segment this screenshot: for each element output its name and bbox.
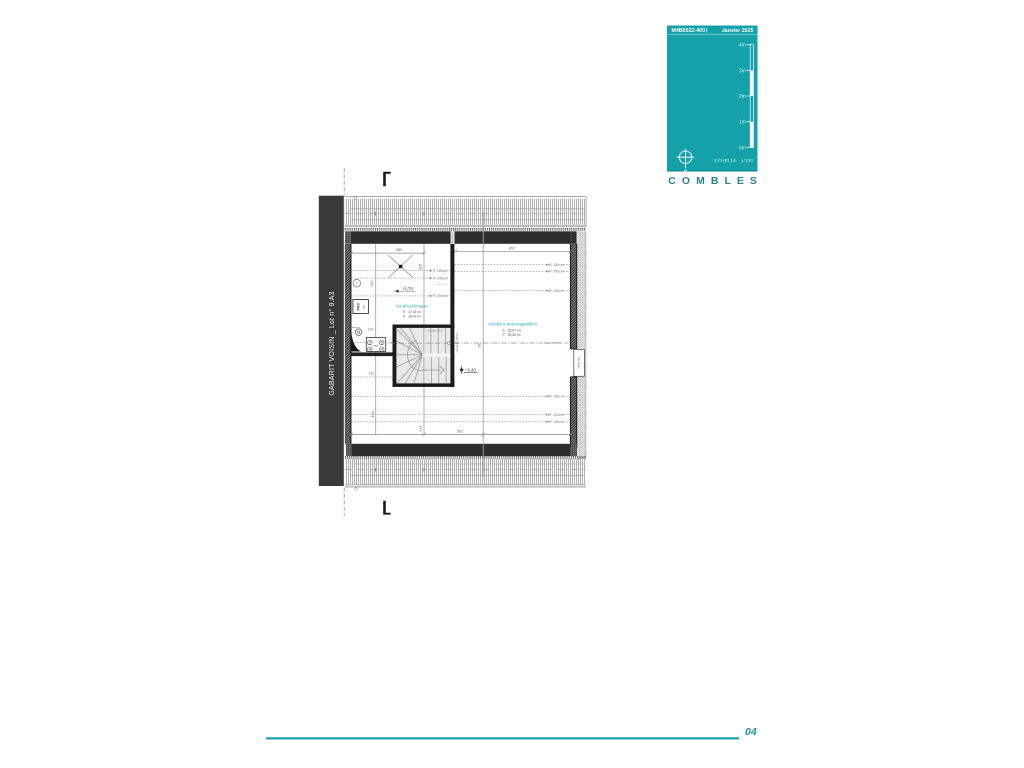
svg-text:ECHELLE 1/100: ECHELLE 1/100	[714, 158, 753, 164]
svg-text:haut fenêtre: haut fenêtre	[544, 341, 562, 345]
svg-text:HF 200cm: HF 200cm	[548, 270, 564, 274]
svg-text:+3,40: +3,40	[465, 367, 476, 372]
svg-text:Janvier 2025: Janvier 2025	[722, 28, 754, 34]
svg-text:velux toit: velux toit	[577, 357, 581, 369]
svg-text:HF 180cm: HF 180cm	[548, 263, 564, 267]
svg-text:512: 512	[370, 280, 374, 286]
svg-text:457: 457	[509, 246, 515, 250]
svg-text:3m: 3m	[739, 68, 746, 74]
svg-text:P 18,42 m²: P 18,42 m²	[403, 315, 422, 319]
svg-text:PAC: PAC	[356, 302, 360, 310]
svg-text:2m: 2m	[739, 94, 746, 100]
svg-text:163: 163	[368, 327, 374, 331]
svg-text:ext.: ext.	[362, 304, 365, 308]
svg-text:COMBLES: COMBLES	[668, 176, 763, 187]
svg-text:4m: 4m	[739, 43, 746, 49]
svg-text:851: 851	[457, 430, 463, 434]
svg-text:monte en 100cm: monte en 100cm	[455, 332, 459, 353]
svg-text:HF 250cm: HF 250cm	[548, 289, 564, 293]
svg-text:combles aménageables: combles aménageables	[488, 322, 538, 327]
svg-text:1m: 1m	[739, 120, 746, 126]
svg-text:local technique: local technique	[396, 304, 428, 309]
svg-text:GABARIT VOISIN _ Lot n° 9.A3: GABARIT VOISIN _ Lot n° 9.A3	[328, 291, 336, 395]
svg-text:HF 180cm: HF 180cm	[431, 269, 447, 273]
svg-text:HF 180cm: HF 180cm	[548, 420, 564, 424]
svg-text:04: 04	[745, 726, 757, 738]
svg-text:163: 163	[368, 372, 374, 376]
svg-text:360: 360	[478, 343, 482, 349]
svg-text:T: T	[356, 282, 358, 286]
svg-text:+1,76: +1,76	[402, 286, 413, 291]
svg-text:HF 250cm: HF 250cm	[548, 395, 564, 399]
svg-text:0m: 0m	[739, 145, 746, 151]
svg-text:HF 250cm: HF 250cm	[431, 294, 447, 298]
svg-text:P 39,38 m²: P 39,38 m²	[503, 333, 522, 337]
svg-text:S 17,44 m²: S 17,44 m²	[403, 310, 422, 314]
svg-text:HF 200cm: HF 200cm	[431, 276, 447, 280]
svg-text:375: 375	[419, 425, 423, 431]
svg-text:425: 425	[419, 264, 423, 270]
svg-text:S 35,67 m²: S 35,67 m²	[503, 328, 522, 332]
svg-text:380: 380	[396, 248, 402, 252]
svg-text:HF 200cm: HF 200cm	[548, 413, 564, 417]
svg-text:M4B0522-400: M4B0522-400	[672, 28, 706, 34]
svg-text:escalier bois: escalier bois	[427, 329, 443, 333]
